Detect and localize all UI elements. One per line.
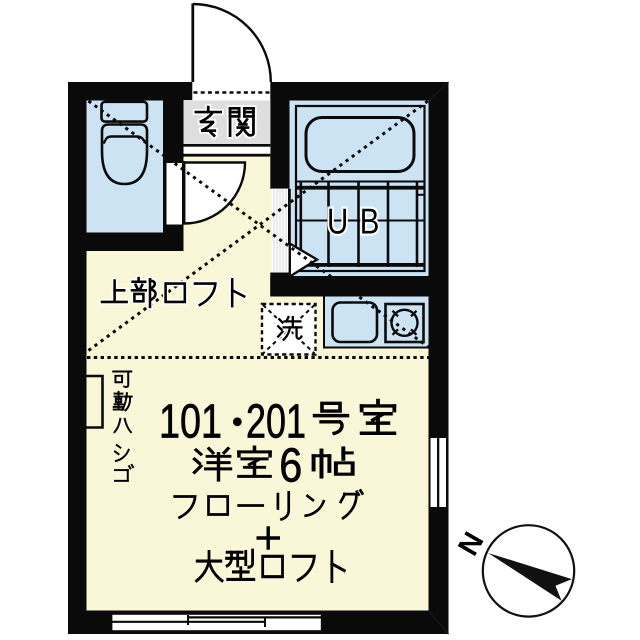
svg-text:6: 6 xyxy=(279,440,302,493)
svg-text:U B: U B xyxy=(327,201,381,242)
svg-text:101: 101 xyxy=(159,396,222,449)
